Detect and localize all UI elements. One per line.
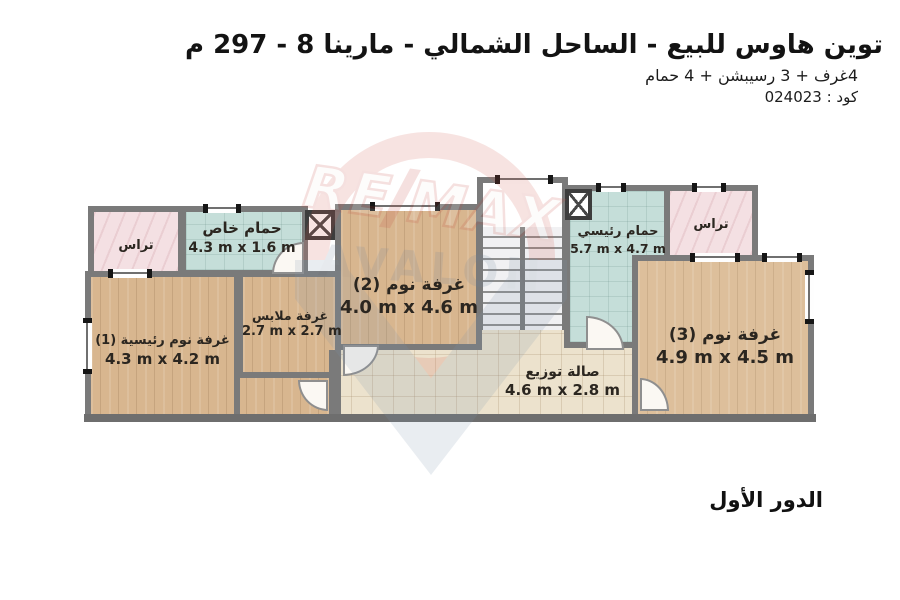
room-name: صالة توزيع [500,363,625,381]
window-symbol [805,270,814,324]
room-name: تراس [92,238,180,255]
room-dimensions: 4.3 m x 1.6 m [182,239,302,257]
window-symbol [83,318,92,374]
label-bedroom-3: غرفة نوم (3) 4.9 m x 4.5 m [650,324,800,369]
stair-flight-right [525,227,562,330]
room-name: غرفة نوم رئيسية (1) [95,333,230,350]
window-symbol [596,183,626,192]
window-symbol [762,253,802,262]
window-symbol [370,202,440,211]
room-name: غرفة ملابس [242,308,338,324]
room-name: تراس [668,217,754,234]
room-dimensions: 2.7 m x 2.7 m [242,324,338,341]
stair-flight-left [483,227,520,330]
shaft-x-icon [565,189,592,220]
window-symbol [692,183,726,192]
room-name: حمام رئيسي [568,224,668,241]
label-hall: صالة توزيع 4.6 m x 2.8 m [500,363,625,401]
label-terrace-right: تراس [668,217,754,234]
room-name: غرفة نوم (3) [650,324,800,346]
window-symbol [203,204,241,213]
label-main-bath: حمام رئيسي 5.7 m x 4.7 m [568,224,668,257]
floor-label: الدور الأول [709,488,823,512]
window-symbol [690,253,740,262]
shaft-x-icon [305,210,335,240]
label-master-bedroom: غرفة نوم رئيسية (1) 4.3 m x 4.2 m [95,333,230,369]
label-dressing: غرفة ملابس 2.7 m x 2.7 m [242,308,338,341]
room-dimensions: 4.3 m x 4.2 m [95,350,230,370]
page: توين هاوس للبيع - الساحل الشمالي - مارين… [0,0,900,600]
label-terrace-left: تراس [92,238,180,255]
room-name: حمام خاص [182,219,302,239]
staircase [477,177,568,330]
room-dimensions: 5.7 m x 4.7 m [568,241,668,257]
label-private-bath: حمام خاص 4.3 m x 1.6 m [182,219,302,257]
outer-wall [84,414,816,422]
room-name: غرفة نوم (2) [340,274,478,296]
room-dimensions: 4.6 m x 2.8 m [500,381,625,401]
label-bedroom-2: غرفة نوم (2) 4.0 m x 4.6 m [340,274,478,319]
room-dimensions: 4.9 m x 4.5 m [650,346,800,369]
window-symbol [108,269,152,278]
room-dimensions: 4.0 m x 4.6 m [340,296,478,319]
window-symbol [495,175,553,184]
wall-segment [329,350,341,418]
